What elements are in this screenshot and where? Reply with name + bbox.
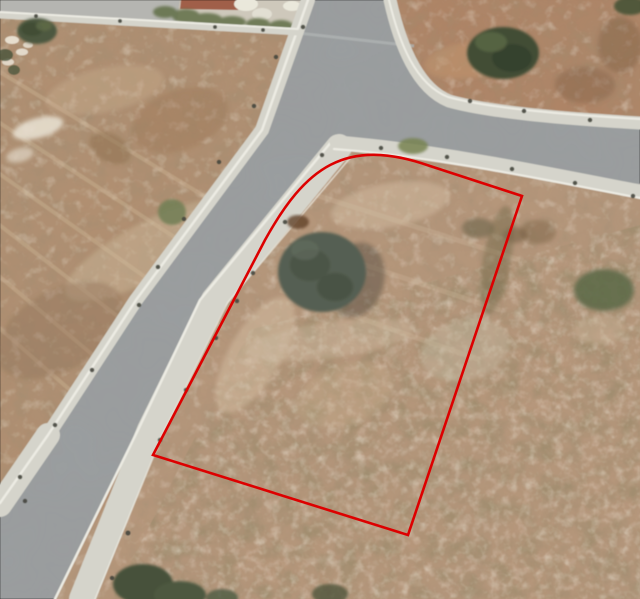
terrain	[0, 0, 640, 599]
haze-overlay	[0, 0, 640, 599]
satellite-screenshot	[0, 0, 640, 599]
aerial-photo	[0, 0, 640, 599]
